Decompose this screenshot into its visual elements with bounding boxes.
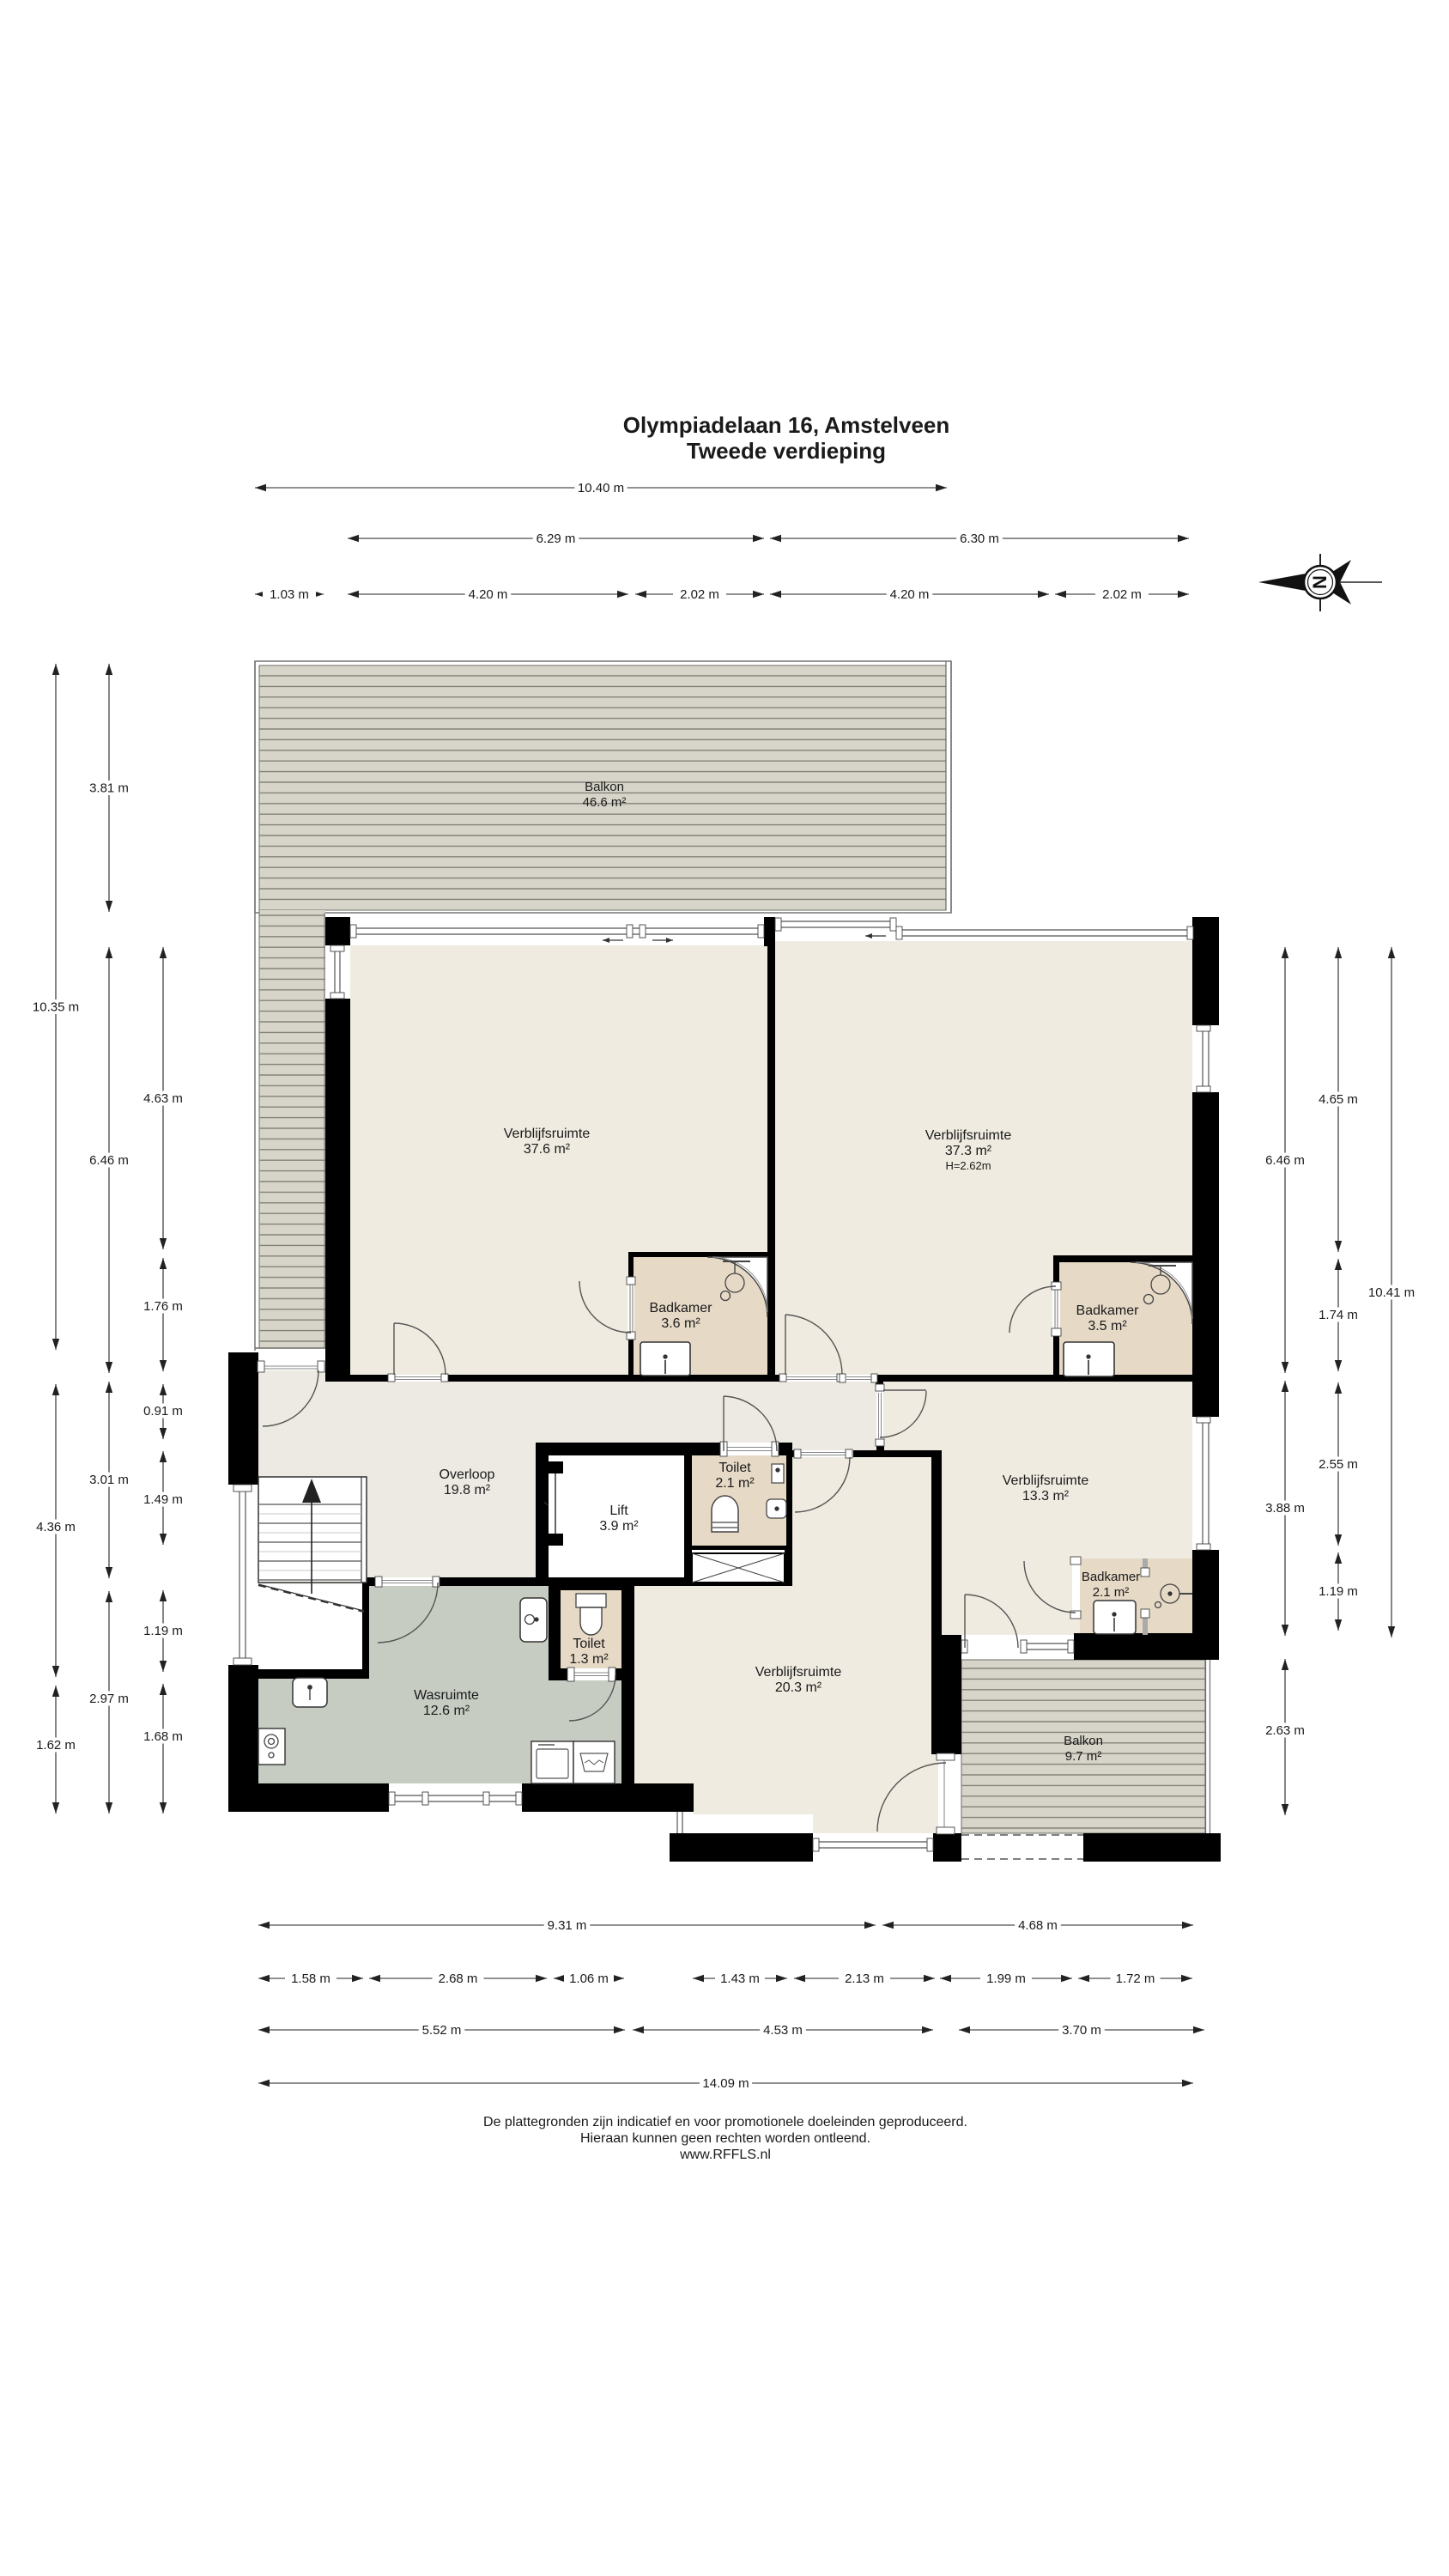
svg-text:13.3 m²: 13.3 m² — [1022, 1489, 1070, 1504]
svg-text:5.52 m: 5.52 m — [422, 2023, 462, 2038]
svg-text:Lift: Lift — [609, 1504, 628, 1518]
svg-text:4.53 m: 4.53 m — [763, 2023, 803, 2038]
svg-text:4.36 m: 4.36 m — [36, 1520, 76, 1534]
svg-text:4.20 m: 4.20 m — [890, 587, 930, 602]
svg-text:2.02 m: 2.02 m — [680, 587, 719, 602]
svg-text:Badkamer: Badkamer — [650, 1301, 713, 1315]
svg-text:Toilet: Toilet — [573, 1637, 605, 1651]
svg-text:4.65 m: 4.65 m — [1319, 1092, 1358, 1107]
svg-text:Verblijfsruimte: Verblijfsruimte — [1003, 1473, 1089, 1488]
svg-text:2.1 m²: 2.1 m² — [1093, 1585, 1130, 1600]
svg-text:3.5 m²: 3.5 m² — [1088, 1319, 1127, 1334]
svg-text:www.RFFLS.nl: www.RFFLS.nl — [679, 2148, 771, 2162]
svg-text:1.76 m: 1.76 m — [143, 1299, 183, 1314]
svg-text:10.40 m: 10.40 m — [578, 481, 624, 495]
svg-text:1.99 m: 1.99 m — [986, 1971, 1026, 1986]
svg-text:1.58 m: 1.58 m — [291, 1971, 330, 1986]
svg-text:1.06 m: 1.06 m — [569, 1971, 609, 1986]
svg-text:19.8 m²: 19.8 m² — [444, 1483, 491, 1498]
svg-text:20.3 m²: 20.3 m² — [775, 1680, 822, 1695]
svg-text:10.35 m: 10.35 m — [33, 1000, 79, 1015]
svg-text:4.63 m: 4.63 m — [143, 1091, 183, 1106]
svg-text:2.68 m: 2.68 m — [439, 1971, 478, 1986]
svg-text:0.91 m: 0.91 m — [143, 1404, 183, 1419]
svg-text:2.63 m: 2.63 m — [1265, 1723, 1305, 1738]
svg-text:3.81 m: 3.81 m — [89, 781, 129, 796]
svg-text:12.6 m²: 12.6 m² — [423, 1704, 470, 1718]
svg-text:1.68 m: 1.68 m — [143, 1729, 183, 1744]
svg-text:Tweede verdieping: Tweede verdieping — [687, 438, 886, 464]
svg-text:Wasruimte: Wasruimte — [414, 1688, 479, 1703]
svg-text:Balkon: Balkon — [1064, 1734, 1103, 1748]
svg-text:Balkon: Balkon — [585, 780, 624, 794]
svg-text:4.20 m: 4.20 m — [469, 587, 508, 602]
svg-text:2.55 m: 2.55 m — [1319, 1457, 1358, 1472]
svg-text:1.19 m: 1.19 m — [143, 1624, 183, 1638]
svg-text:1.72 m: 1.72 m — [1116, 1971, 1155, 1986]
svg-text:Hieraan kunnen geen rechten wo: Hieraan kunnen geen rechten worden ontle… — [580, 2131, 870, 2146]
svg-text:Badkamer: Badkamer — [1076, 1303, 1140, 1318]
svg-text:9.31 m: 9.31 m — [548, 1918, 587, 1933]
svg-text:Toilet: Toilet — [718, 1461, 751, 1475]
svg-text:H=2.62m: H=2.62m — [945, 1159, 991, 1172]
svg-text:1.03 m: 1.03 m — [270, 587, 309, 602]
svg-text:14.09 m: 14.09 m — [702, 2076, 749, 2091]
svg-text:9.7 m²: 9.7 m² — [1065, 1749, 1102, 1764]
svg-text:2.1 m²: 2.1 m² — [715, 1476, 755, 1491]
svg-text:6.30 m: 6.30 m — [960, 532, 999, 546]
svg-text:De plattegronden zijn indicati: De plattegronden zijn indicatief en voor… — [483, 2115, 967, 2129]
svg-text:46.6 m²: 46.6 m² — [583, 795, 627, 810]
svg-text:2.97 m: 2.97 m — [89, 1692, 129, 1706]
svg-text:3.6 m²: 3.6 m² — [661, 1316, 700, 1331]
svg-text:2.02 m: 2.02 m — [1102, 587, 1142, 602]
svg-text:Overloop: Overloop — [440, 1467, 495, 1482]
svg-text:4.68 m: 4.68 m — [1018, 1918, 1058, 1933]
svg-text:1.3 m²: 1.3 m² — [569, 1652, 609, 1667]
svg-text:Verblijfsruimte: Verblijfsruimte — [504, 1127, 591, 1141]
svg-text:3.9 m²: 3.9 m² — [599, 1519, 639, 1534]
svg-text:3.70 m: 3.70 m — [1062, 2023, 1101, 2038]
svg-text:Badkamer: Badkamer — [1082, 1570, 1140, 1584]
svg-text:6.46 m: 6.46 m — [89, 1153, 129, 1168]
svg-text:3.01 m: 3.01 m — [89, 1473, 129, 1487]
svg-text:1.74 m: 1.74 m — [1319, 1308, 1358, 1322]
svg-text:N: N — [1309, 575, 1331, 589]
svg-text:1.43 m: 1.43 m — [720, 1971, 760, 1986]
svg-text:Verblijfsruimte: Verblijfsruimte — [925, 1128, 1012, 1143]
svg-text:1.49 m: 1.49 m — [143, 1492, 183, 1507]
svg-text:6.29 m: 6.29 m — [537, 532, 576, 546]
svg-text:Olympiadelaan 16, Amstelveen: Olympiadelaan 16, Amstelveen — [623, 412, 950, 438]
svg-text:6.46 m: 6.46 m — [1265, 1153, 1305, 1168]
svg-text:10.41 m: 10.41 m — [1368, 1285, 1415, 1300]
svg-text:37.6 m²: 37.6 m² — [524, 1142, 571, 1157]
svg-text:1.19 m: 1.19 m — [1319, 1584, 1358, 1599]
svg-text:1.62 m: 1.62 m — [36, 1738, 76, 1753]
svg-text:Verblijfsruimte: Verblijfsruimte — [755, 1665, 842, 1680]
svg-text:3.88 m: 3.88 m — [1265, 1501, 1305, 1516]
svg-text:2.13 m: 2.13 m — [845, 1971, 884, 1986]
svg-text:37.3 m²: 37.3 m² — [945, 1144, 992, 1158]
